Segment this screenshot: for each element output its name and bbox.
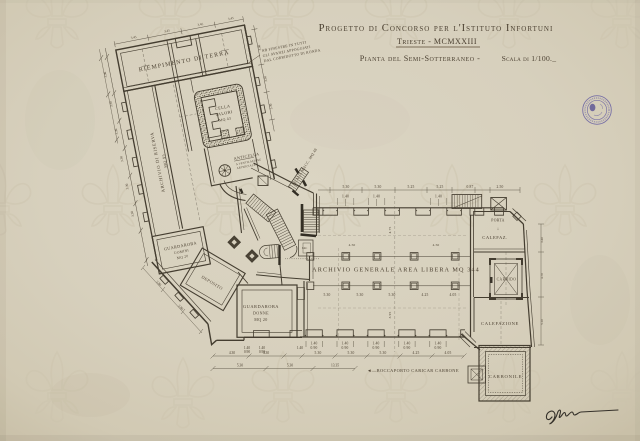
svg-text:5.30: 5.30	[287, 364, 293, 368]
svg-text:3.95: 3.95	[388, 312, 392, 319]
svg-text:0.90: 0.90	[341, 346, 348, 350]
svg-text:DONNE: DONNE	[253, 311, 269, 316]
svg-text:4.50: 4.50	[433, 243, 440, 247]
svg-text:FAC: FAC	[302, 247, 307, 250]
svg-text:1.40: 1.40	[434, 342, 441, 346]
svg-text:1.40: 1.40	[435, 195, 442, 199]
svg-text:5.30: 5.30	[342, 185, 349, 189]
svg-text:Pianta del Semi-Sotterraneo -: Pianta del Semi-Sotterraneo -	[360, 54, 481, 63]
svg-text:5.25: 5.25	[407, 185, 414, 189]
svg-text:0.90: 0.90	[310, 346, 317, 350]
svg-text:4.05: 4.05	[444, 351, 451, 355]
svg-text:4.50: 4.50	[349, 243, 356, 247]
svg-text:5.25: 5.25	[436, 185, 443, 189]
svg-text:Trieste - MCMXXIII: Trieste - MCMXXIII	[397, 37, 477, 46]
svg-text:ARCHIVIO GENERALE AREA LIBERA: ARCHIVIO GENERALE AREA LIBERA MQ 344	[312, 267, 480, 274]
svg-text:CARBIDO: CARBIDO	[497, 278, 517, 282]
svg-text:0.90: 0.90	[403, 346, 410, 350]
svg-text:0.90: 0.90	[259, 350, 265, 354]
svg-text:5.30: 5.30	[323, 293, 330, 297]
svg-text:5.30: 5.30	[237, 364, 243, 368]
svg-text:1.40: 1.40	[341, 342, 348, 346]
svg-text:Scala di 1/100._: Scala di 1/100._	[502, 54, 557, 63]
svg-text:0.87: 0.87	[466, 185, 473, 189]
svg-text:GUARDAROBA: GUARDAROBA	[243, 304, 279, 309]
svg-text:CALEFAZ.: CALEFAZ.	[482, 235, 507, 240]
svg-text:Progetto di Concorso per l'Ist: Progetto di Concorso per l'Istituto Info…	[319, 23, 554, 34]
svg-text:2.50: 2.50	[496, 185, 503, 189]
svg-text:3.40: 3.40	[540, 237, 544, 243]
svg-text:1.40: 1.40	[297, 346, 303, 350]
svg-text:4.70: 4.70	[540, 273, 544, 279]
svg-text:1.40: 1.40	[373, 195, 380, 199]
svg-text:0.90: 0.90	[434, 346, 441, 350]
svg-text:5.30: 5.30	[388, 293, 395, 297]
svg-text:CALEFAZIONE: CALEFAZIONE	[481, 321, 519, 326]
svg-text:13.35: 13.35	[331, 364, 339, 368]
svg-text:0.90: 0.90	[372, 346, 379, 350]
svg-text:0.90: 0.90	[244, 350, 250, 354]
svg-text:1.40: 1.40	[372, 342, 379, 346]
svg-text:5.30: 5.30	[356, 293, 363, 297]
svg-text:4.25: 4.25	[412, 351, 419, 355]
svg-text:5.30: 5.30	[374, 185, 381, 189]
svg-text:4.75: 4.75	[388, 227, 392, 234]
svg-text:5.30: 5.30	[314, 351, 321, 355]
svg-text:4.30: 4.30	[229, 351, 235, 355]
svg-text:CARBONILE: CARBONILE	[489, 374, 523, 379]
svg-text:MQ 20: MQ 20	[254, 317, 267, 322]
svg-text:1.40: 1.40	[403, 342, 410, 346]
svg-text:5.30: 5.30	[347, 351, 354, 355]
svg-text:1.40: 1.40	[342, 195, 349, 199]
svg-text:◄—BOCCAPORTO CARICAR CARBONE: ◄—BOCCAPORTO CARICAR CARBONE	[367, 368, 459, 373]
svg-text:5.10: 5.10	[540, 319, 544, 325]
svg-text:↓: ↓	[497, 226, 499, 231]
svg-text:4.25: 4.25	[421, 293, 428, 297]
svg-text:4.05: 4.05	[449, 293, 456, 297]
svg-text:PORTA: PORTA	[491, 219, 504, 223]
svg-text:5.30: 5.30	[379, 351, 386, 355]
svg-text:1.40: 1.40	[310, 342, 317, 346]
